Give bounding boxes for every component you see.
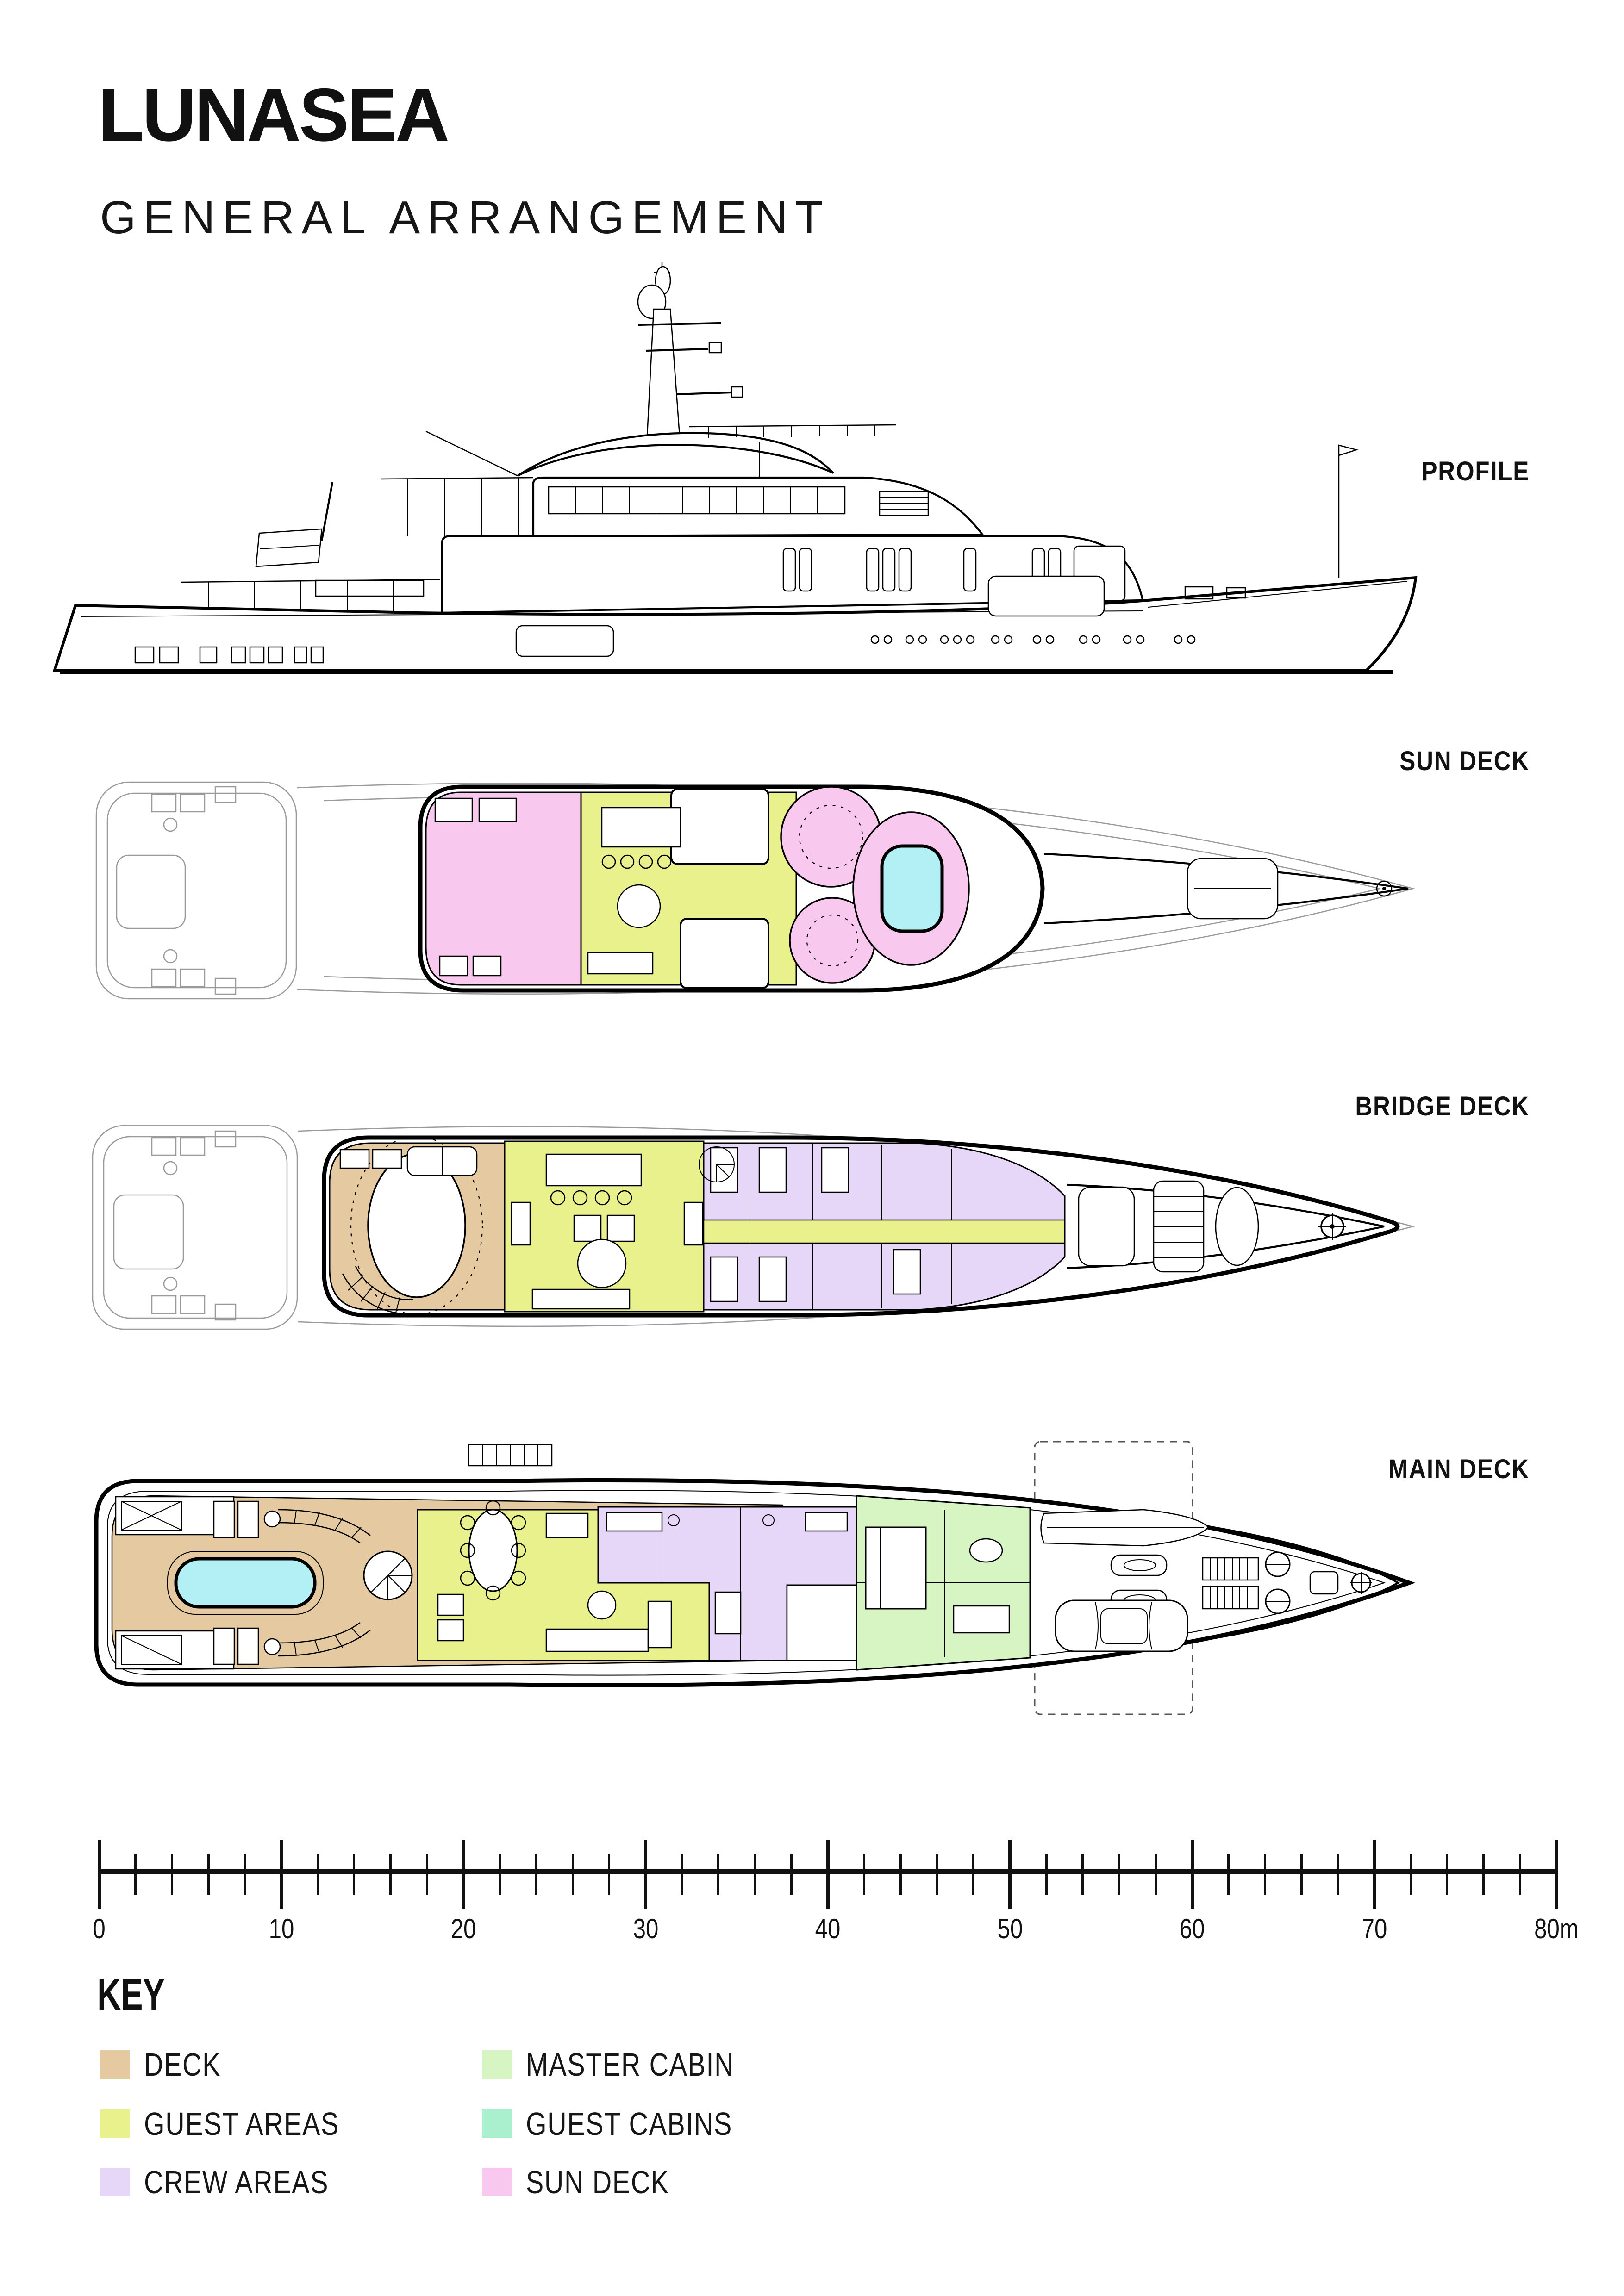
scale-minor-tick [1446,1854,1448,1895]
scale-minor-tick [244,1854,246,1895]
legend-item-crew-areas: CREW AREAS [100,2168,369,2196]
legend-label-crew-areas: CREW AREAS [144,2168,329,2196]
scale-minor-tick [134,1854,137,1895]
scale-minor-tick [972,1854,974,1895]
scale-minor-tick [681,1854,683,1895]
scale-major-tick [1373,1840,1376,1909]
jet-ski-1 [1111,1555,1167,1575]
sun-deck-bottom-room [681,919,768,988]
scale-minor-tick [389,1854,392,1895]
scale-minor-tick [1227,1854,1230,1895]
scale-minor-tick [426,1854,428,1895]
legend-item-sun-deck: SUN DECK [482,2168,701,2196]
scale-major-tick [280,1840,283,1909]
scale-minor-tick [1519,1854,1521,1895]
scale-minor-tick [317,1854,319,1895]
scale-minor-tick [1081,1854,1084,1895]
legend-swatch-sun-deck [482,2168,512,2196]
legend-item-master-cabin: MASTER CABIN [482,2050,780,2079]
scale-minor-tick [754,1854,756,1895]
sun-deck-pool [882,846,942,931]
garage-stairs-1 [1203,1558,1258,1580]
scale-minor-tick [1300,1854,1303,1895]
scale-label: 80m [1534,1915,1579,1943]
legend-label-sun-deck: SUN DECK [526,2168,669,2196]
scale-major-tick [462,1840,465,1909]
scale-minor-tick [1045,1854,1048,1895]
scale-label: 30 [633,1915,658,1943]
garage-stairs-2 [1203,1587,1258,1609]
scale-label: 70 [1362,1915,1387,1943]
page-title: LUNASEA [98,78,448,153]
legend-label-master-cabin: MASTER CABIN [526,2050,734,2079]
scale-minor-tick [572,1854,574,1895]
legend-label-guest-cabins: GUEST CABINS [526,2109,732,2138]
scale-minor-tick [1264,1854,1266,1895]
main-deck-pool-group [168,1551,323,1614]
scale-minor-tick [1155,1854,1157,1895]
sun-deck-foredeck-details [1044,854,1408,923]
scale-minor-tick [608,1854,610,1895]
legend-item-deck: DECK [100,2050,237,2079]
profile-drawing [46,231,1435,694]
profile-bridge-deck-structure [381,478,982,536]
scale-label: 40 [815,1915,841,1943]
scale-minor-tick [863,1854,865,1895]
scale-minor-tick [1337,1854,1339,1895]
main-deck-top-structure [468,1444,552,1466]
scale-minor-tick [499,1854,501,1895]
scale-minor-tick [899,1854,902,1895]
scale-label: 20 [451,1915,476,1943]
scale-minor-tick [717,1854,719,1895]
scale-major-tick [1191,1840,1194,1909]
scale-label: 60 [1180,1915,1205,1943]
scale-major-tick [644,1840,647,1909]
legend-label-deck: DECK [144,2050,221,2079]
scale-major-tick [1008,1840,1012,1909]
legend-swatch-master-cabin [482,2050,512,2079]
profile-mast [638,262,743,436]
bridge-deck-plan [69,1111,1458,1435]
legend-item-guest-areas: GUEST AREAS [100,2109,382,2138]
scale-minor-tick [171,1854,173,1895]
legend-swatch-guest-cabins [482,2109,512,2138]
scale-label: 0 [93,1915,105,1943]
scale-minor-tick [1118,1854,1120,1895]
key-heading: KEY [97,1972,165,2017]
legend-item-guest-cabins: GUEST CABINS [482,2109,778,2138]
main-deck-bathroom [787,1585,856,1661]
sun-deck-top-room [671,789,768,864]
ga-sheet: LUNASEA GENERAL ARRANGEMENT PROFILE SUN … [0,0,1624,2296]
legend-swatch-crew-areas [100,2168,130,2196]
scale-major-tick [98,1840,101,1909]
scale-major-tick [826,1840,830,1909]
main-deck-pool [176,1559,315,1607]
scale-minor-tick [535,1854,537,1895]
bridge-deck-foredeck-details [1067,1181,1384,1272]
bridge-deck-corridor [704,1220,1065,1243]
profile-stern-flag [256,482,332,566]
scale-major-tick [1555,1840,1558,1909]
legend-swatch-deck [100,2050,130,2079]
legend-swatch-guest-areas [100,2109,130,2138]
scale-minor-tick [1482,1854,1485,1895]
scale-label: 50 [997,1915,1023,1943]
scale-minor-tick [207,1854,210,1895]
scale-minor-tick [1410,1854,1412,1895]
legend-label-guest-areas: GUEST AREAS [144,2109,339,2138]
sun-deck-plan [69,750,1458,1064]
scale-minor-tick [936,1854,938,1895]
scale-minor-tick [353,1854,355,1895]
scale-minor-tick [790,1854,793,1895]
profile-bow-staff [1339,445,1356,578]
main-deck-plan [69,1425,1481,1796]
scale-label: 10 [269,1915,294,1943]
